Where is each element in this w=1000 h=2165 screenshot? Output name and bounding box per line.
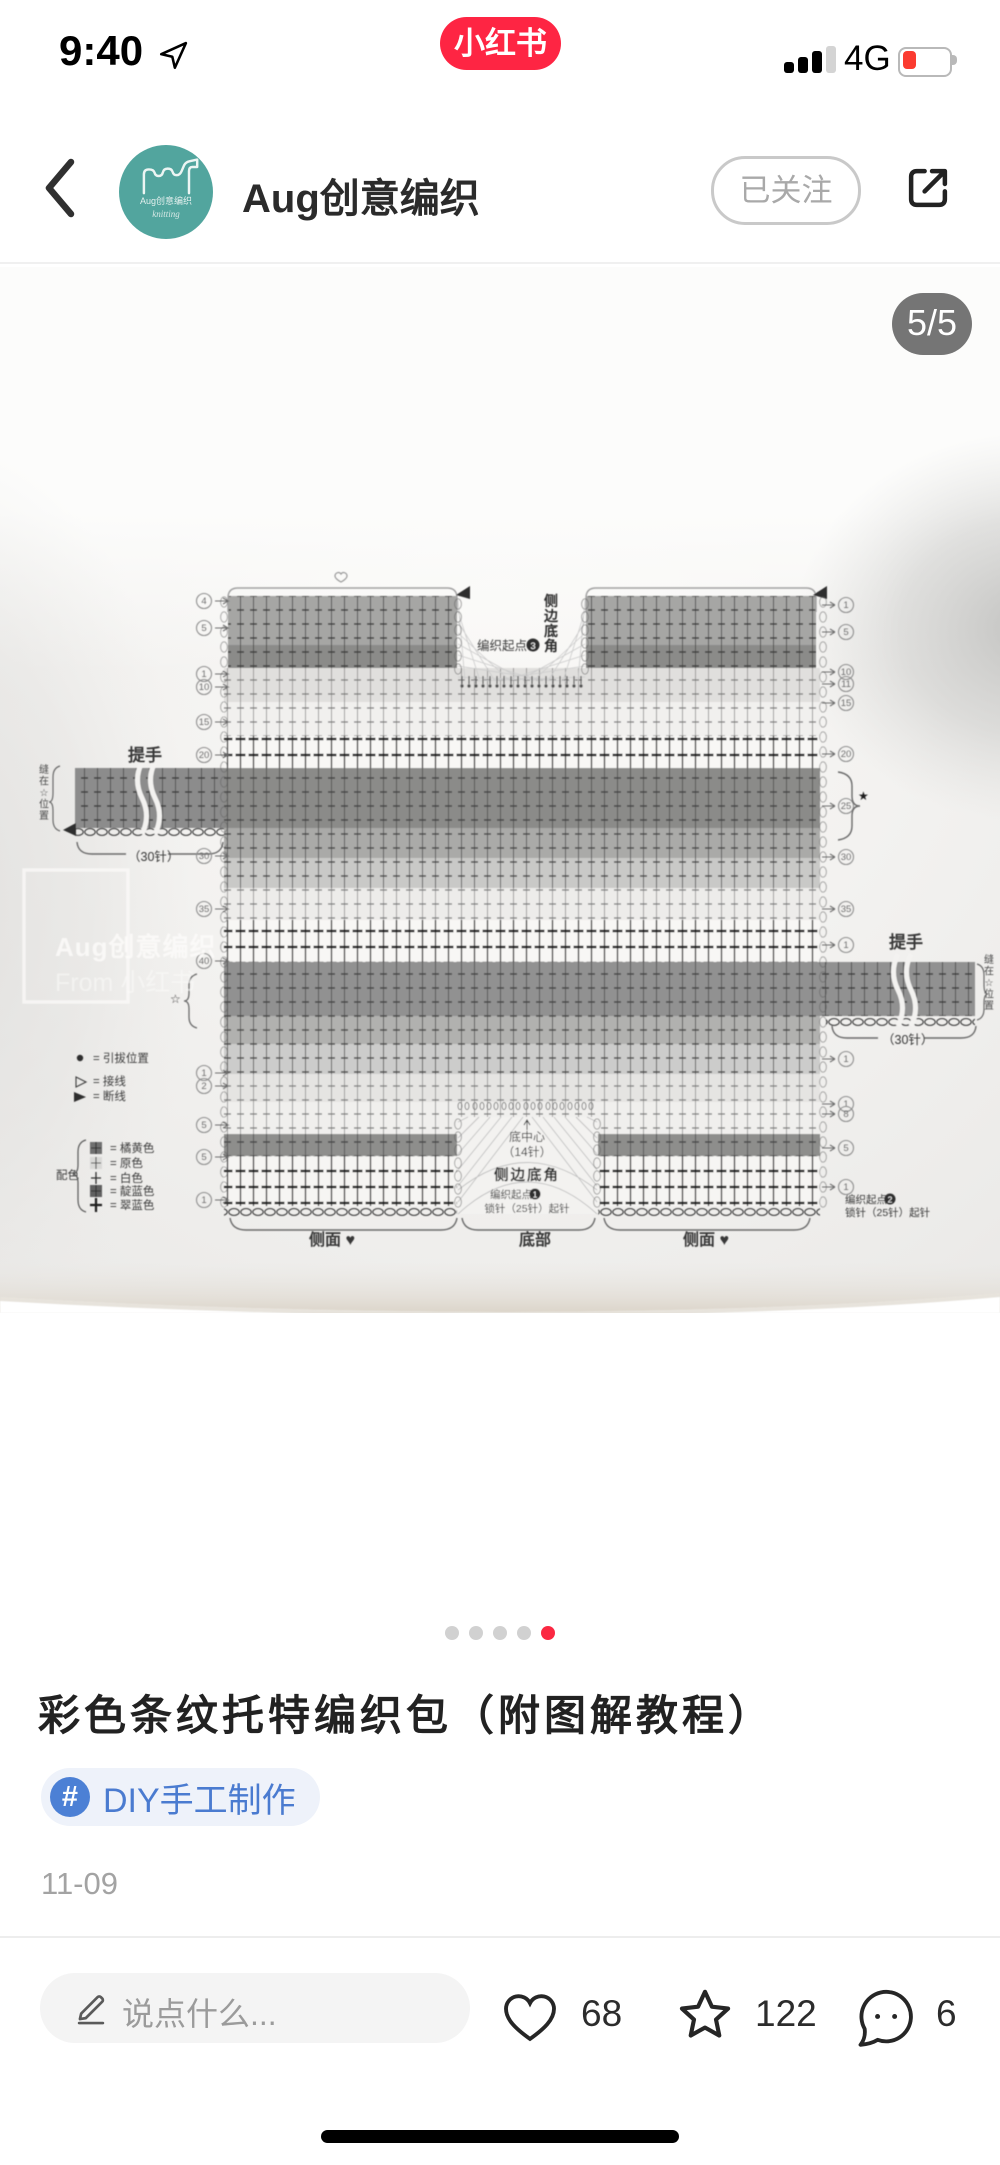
- svg-text:★: ★: [858, 789, 869, 803]
- svg-text:5: 5: [201, 623, 206, 634]
- svg-text:底中心: 底中心: [509, 1129, 545, 1144]
- svg-text:5: 5: [843, 1143, 848, 1154]
- svg-text:= 靛蓝色: = 靛蓝色: [110, 1184, 155, 1198]
- svg-text:编织起点: 编织起点: [477, 638, 527, 653]
- svg-text:1: 1: [533, 1190, 538, 1200]
- svg-text:20: 20: [841, 749, 852, 760]
- svg-text:= 断线: = 断线: [93, 1089, 126, 1103]
- svg-text:30: 30: [199, 851, 210, 862]
- svg-text:1: 1: [843, 1182, 848, 1193]
- svg-text:35: 35: [199, 904, 210, 915]
- svg-text:2: 2: [201, 1081, 206, 1092]
- svg-text:20: 20: [199, 750, 210, 761]
- svg-text:35: 35: [841, 904, 852, 915]
- svg-text:5: 5: [843, 627, 848, 638]
- svg-text:（14针）: （14针）: [502, 1144, 551, 1159]
- svg-text:= 接线: = 接线: [93, 1074, 126, 1088]
- svg-text:缝在☆位置: 缝在☆位置: [984, 953, 994, 1012]
- svg-text:= 白色: = 白色: [110, 1171, 143, 1185]
- svg-text:缝在☆位置: 缝在☆位置: [39, 763, 49, 822]
- svg-text:侧面 ♥: 侧面 ♥: [683, 1230, 729, 1249]
- svg-text:1: 1: [843, 940, 848, 951]
- svg-text:15: 15: [841, 698, 852, 709]
- svg-text:1: 1: [201, 669, 206, 680]
- svg-text:5: 5: [201, 1152, 206, 1163]
- svg-text:30: 30: [841, 852, 852, 863]
- svg-text:1: 1: [843, 1054, 848, 1065]
- svg-text:2: 2: [888, 1195, 893, 1205]
- svg-text:= 原色: = 原色: [110, 1156, 143, 1170]
- svg-text:= 翠蓝色: = 翠蓝色: [110, 1198, 155, 1212]
- svg-text:15: 15: [199, 717, 210, 728]
- svg-text:1: 1: [843, 600, 848, 611]
- svg-text:（30针）: （30针）: [128, 849, 179, 864]
- svg-text:= 引拔位置: = 引拔位置: [93, 1051, 149, 1065]
- svg-text:1: 1: [201, 1195, 206, 1206]
- svg-text:Aug创意编织: Aug创意编织: [140, 195, 192, 206]
- svg-text:锁针（25针）起针: 锁针（25针）起针: [845, 1206, 930, 1219]
- svg-text:锁针（25针）起针: 锁针（25针）起针: [484, 1202, 569, 1215]
- svg-text:3: 3: [530, 641, 535, 652]
- svg-text:5: 5: [201, 1120, 206, 1131]
- svg-text:提手: 提手: [128, 745, 162, 765]
- svg-text:1: 1: [201, 1068, 206, 1079]
- svg-text:（30针）: （30针）: [882, 1032, 933, 1047]
- svg-text:Aug创意编织: Aug创意编织: [55, 932, 217, 962]
- svg-text:编织起点: 编织起点: [845, 1193, 887, 1206]
- svg-text:侧边底角: 侧边底角: [543, 593, 559, 654]
- svg-text:knitting: knitting: [152, 209, 180, 219]
- svg-text:From 小红书: From 小红书: [55, 969, 195, 997]
- svg-text:侧边底角: 侧边底角: [494, 1166, 560, 1184]
- svg-text:4: 4: [201, 596, 206, 607]
- svg-text:8: 8: [843, 1109, 848, 1120]
- svg-text:提手: 提手: [889, 932, 923, 952]
- svg-text:底部: 底部: [519, 1230, 551, 1249]
- svg-text:编织起点: 编织起点: [490, 1188, 532, 1201]
- svg-text:10: 10: [199, 682, 210, 693]
- svg-text:11: 11: [841, 679, 851, 690]
- svg-text:侧面 ♥: 侧面 ♥: [309, 1230, 355, 1249]
- svg-text:25: 25: [841, 801, 852, 812]
- svg-text:= 橘黄色: = 橘黄色: [110, 1141, 155, 1155]
